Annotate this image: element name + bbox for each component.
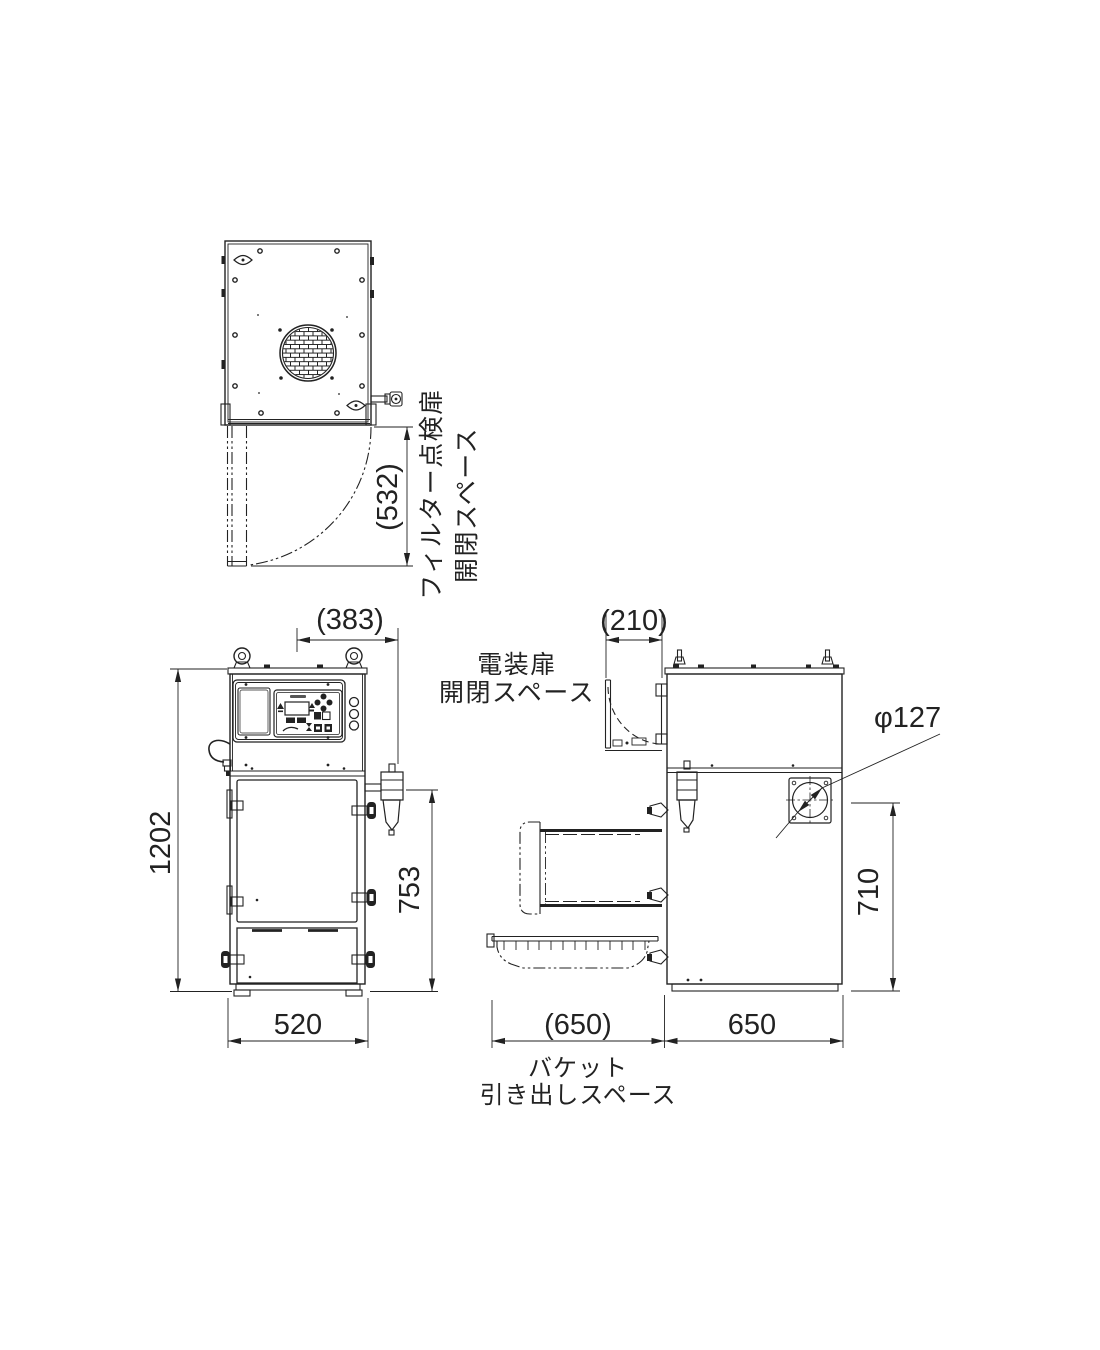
dim-753-text: 753 <box>394 866 426 914</box>
door-swing-arc <box>608 687 659 744</box>
bucket-label-line2: 引き出しスペース <box>479 1082 676 1109</box>
lifting-eyes <box>234 648 362 668</box>
dim-383: (383) <box>297 604 398 764</box>
dim-650p-text: (650) <box>544 1009 612 1041</box>
eye-bolt-icon <box>674 650 833 664</box>
electrical-door-open <box>605 680 662 751</box>
door-swing-arc <box>249 427 371 565</box>
technical-drawing-page: (532) フィルター点検扉 開閉スペース <box>0 0 1100 1350</box>
filter-access-door <box>227 780 376 922</box>
suction-port: φ127 <box>776 702 941 838</box>
air-regulator-icon <box>365 764 403 835</box>
dust-bucket-pullout <box>487 934 658 968</box>
electrical-door-label-line1: 電装扉 <box>477 651 557 679</box>
dim-520-text: 520 <box>274 1009 322 1041</box>
latch <box>352 802 376 819</box>
base <box>672 979 838 991</box>
dim-1202: 1202 <box>145 669 232 992</box>
filter-door-open <box>228 426 372 566</box>
dim-phi127-text: φ127 <box>874 702 941 734</box>
bucket-label: バケット 引き出しスペース <box>479 1055 676 1109</box>
dim-520: 520 <box>228 998 368 1048</box>
dust-door <box>221 928 375 983</box>
up-arrow-icon <box>277 703 284 709</box>
square-button <box>323 712 331 720</box>
electrical-door-label: 電装扉 開閉スペース <box>439 651 595 707</box>
brand-label <box>290 695 306 698</box>
latch <box>352 951 375 968</box>
round-button <box>315 700 321 706</box>
bucket-frame-pullout <box>520 822 662 914</box>
leader-line <box>822 734 940 788</box>
filter-door-label-line2: 開閉スペース <box>453 427 481 583</box>
round-button <box>321 706 327 712</box>
electrical-door-label-line2: 開閉スペース <box>439 679 595 707</box>
bucket-label-line1: バケット <box>528 1055 628 1082</box>
electrical-door-closed <box>656 684 667 744</box>
dim-650-text: 650 <box>728 1009 776 1041</box>
dim-210-text: (210) <box>600 605 668 637</box>
filter-door-label-line1: フィルター点検扉 <box>418 388 446 600</box>
round-button <box>327 700 333 706</box>
hourglass-icon <box>306 723 312 731</box>
cable-loop-icon <box>209 740 231 776</box>
control-pad <box>274 690 342 737</box>
air-regulator-icon <box>677 761 697 832</box>
dim-710: 710 <box>851 803 900 991</box>
drawing-canvas: (532) フィルター点検扉 開閉スペース <box>0 0 1100 1350</box>
square-button <box>314 712 321 720</box>
dim-1202-text: 1202 <box>145 811 177 876</box>
indicator-lights <box>350 698 359 731</box>
dim-532: (532) <box>251 427 413 566</box>
lcd-display <box>285 702 309 715</box>
filter-door-label: フィルター点検扉 開閉スペース <box>418 388 481 600</box>
dim-753: 753 <box>370 790 438 992</box>
latch <box>352 889 376 906</box>
side-view: (210) 電装扉 開閉スペース <box>439 605 941 1109</box>
dim-710-text: 710 <box>853 868 885 916</box>
control-panel <box>233 680 359 742</box>
front-view: (383) 1202 753 520 <box>145 604 438 1048</box>
dim-532-text: (532) <box>372 463 404 531</box>
dim-650-pullout: (650) 650 <box>492 995 843 1048</box>
dim-383-text: (383) <box>316 604 384 636</box>
bucket-hatch-ticks <box>504 941 645 950</box>
top-view: (532) フィルター点検扉 開閉スペース <box>221 241 481 600</box>
dim-210: (210) <box>600 605 668 678</box>
base <box>234 984 362 996</box>
panel-window <box>238 688 270 735</box>
diameter-arrows <box>798 788 822 812</box>
round-button <box>321 694 327 700</box>
latch <box>221 951 244 968</box>
fan-grille-icon <box>280 325 336 381</box>
up-arrow-icon <box>309 703 315 708</box>
